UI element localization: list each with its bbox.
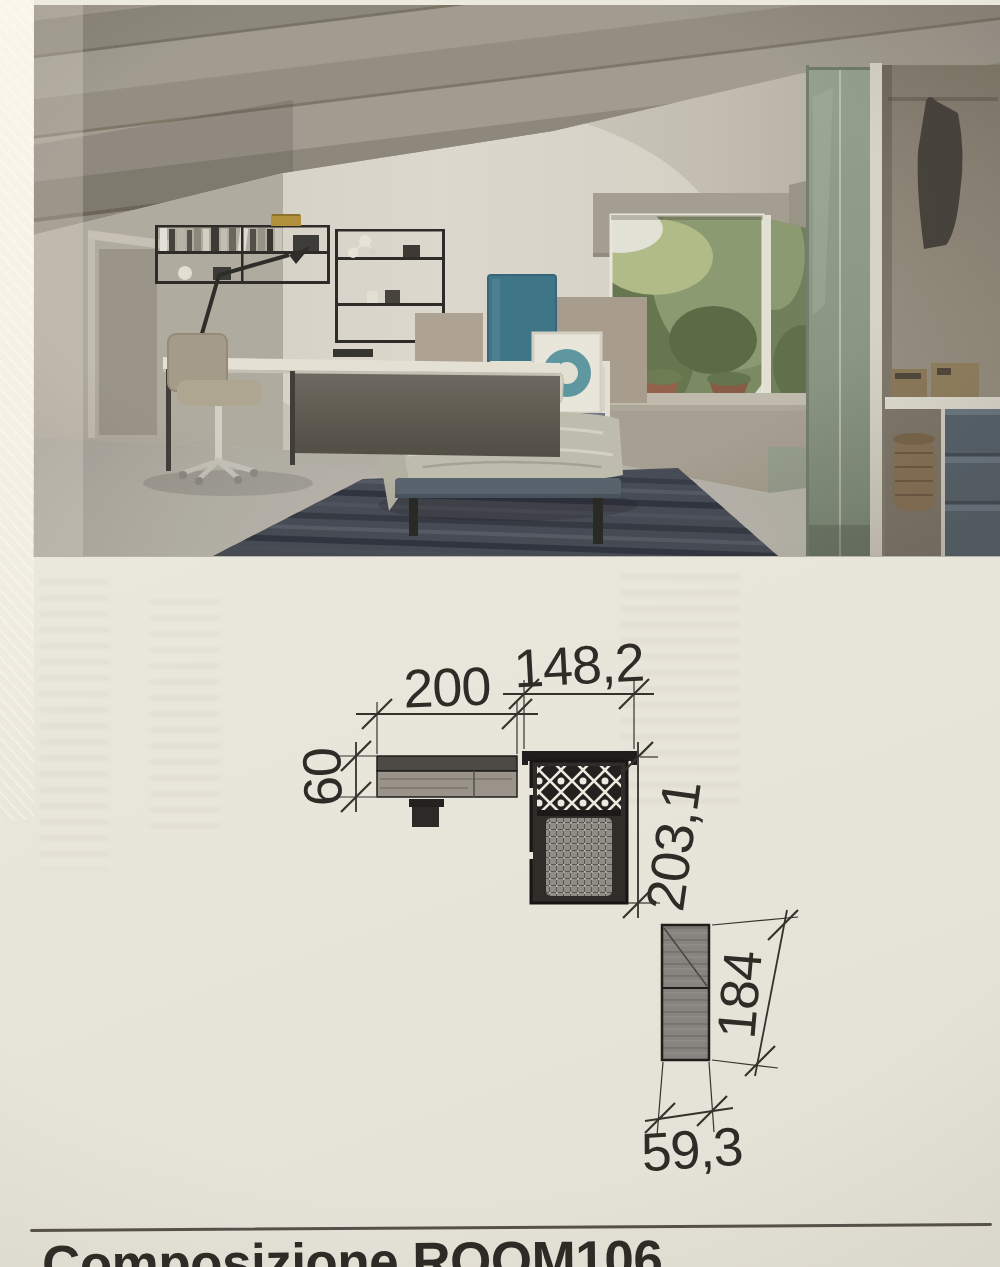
bed-plan: [522, 751, 637, 903]
catalog-page: 200 148,2 60 203,1 184 59,3 Composizione…: [0, 0, 1000, 1267]
dim-desk-width: 200: [402, 656, 491, 719]
floor-plan-drawing: 200 148,2 60 203,1 184 59,3: [0, 0, 1000, 1267]
dim-wardrobe-height: 184: [705, 949, 772, 1041]
bed-pillow-lattice: [537, 766, 621, 810]
dim-wardrobe-width: 59,3: [639, 1116, 744, 1183]
desk-chair-plan: [412, 807, 439, 827]
dim-bed-length: 203,1: [634, 777, 712, 914]
desk-plan: [377, 756, 517, 827]
wardrobe-plan: [662, 925, 709, 1060]
dim-bed-width: 148,2: [512, 632, 645, 699]
page-title: Composizione ROOM106: [42, 1228, 663, 1267]
dimension-lines: [336, 679, 798, 1136]
dim-desk-depth: 60: [291, 747, 353, 807]
desk-chair-plan: [409, 799, 444, 807]
